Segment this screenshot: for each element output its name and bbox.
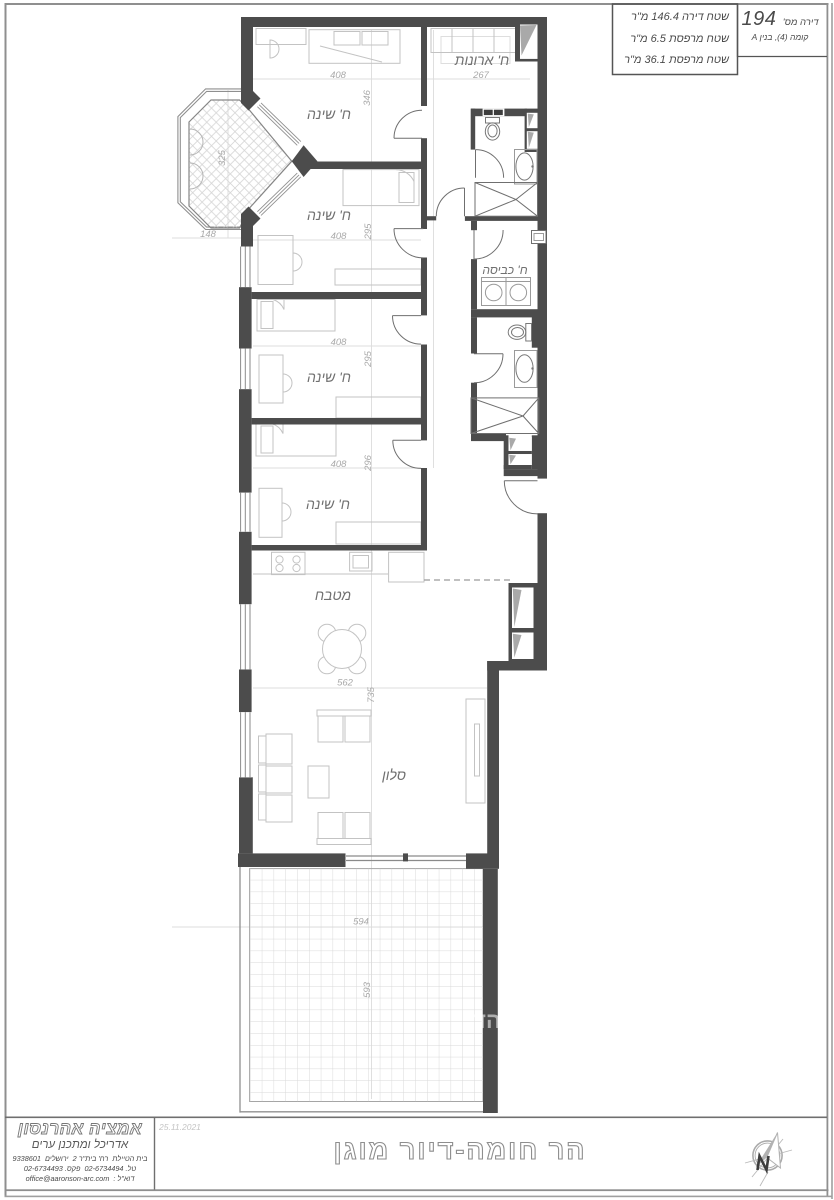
svg-text:295: 295 (363, 350, 374, 368)
svg-text:ח' ארונות: ח' ארונות (454, 52, 509, 68)
svg-text:735: 735 (366, 686, 377, 703)
svg-text:267: 267 (472, 70, 490, 81)
svg-text:594: 594 (353, 917, 369, 928)
svg-text:ח' שינה: ח' שינה (306, 496, 350, 512)
svg-text:593: 593 (362, 981, 373, 998)
svg-text:408: 408 (331, 337, 348, 348)
svg-text:148: 148 (200, 229, 217, 240)
svg-text:408: 408 (331, 459, 348, 470)
svg-text:346: 346 (362, 89, 373, 106)
svg-text:מטבח: מטבח (315, 587, 351, 603)
svg-text:562: 562 (337, 678, 354, 689)
svg-text:296: 296 (363, 454, 374, 472)
svg-text:ח' כביסה: ח' כביסה (482, 263, 527, 277)
svg-text:408: 408 (330, 70, 347, 81)
svg-text:295: 295 (363, 223, 374, 241)
svg-text:408: 408 (331, 231, 348, 242)
svg-text:סלון: סלון (381, 767, 406, 783)
svg-text:325: 325 (217, 149, 228, 166)
svg-text:ח' שינה: ח' שינה (307, 106, 351, 122)
svg-text:הד: הד (473, 1008, 501, 1033)
svg-text:ח' שינה: ח' שינה (307, 207, 351, 223)
svg-text:ח' שינה: ח' שינה (307, 369, 351, 385)
